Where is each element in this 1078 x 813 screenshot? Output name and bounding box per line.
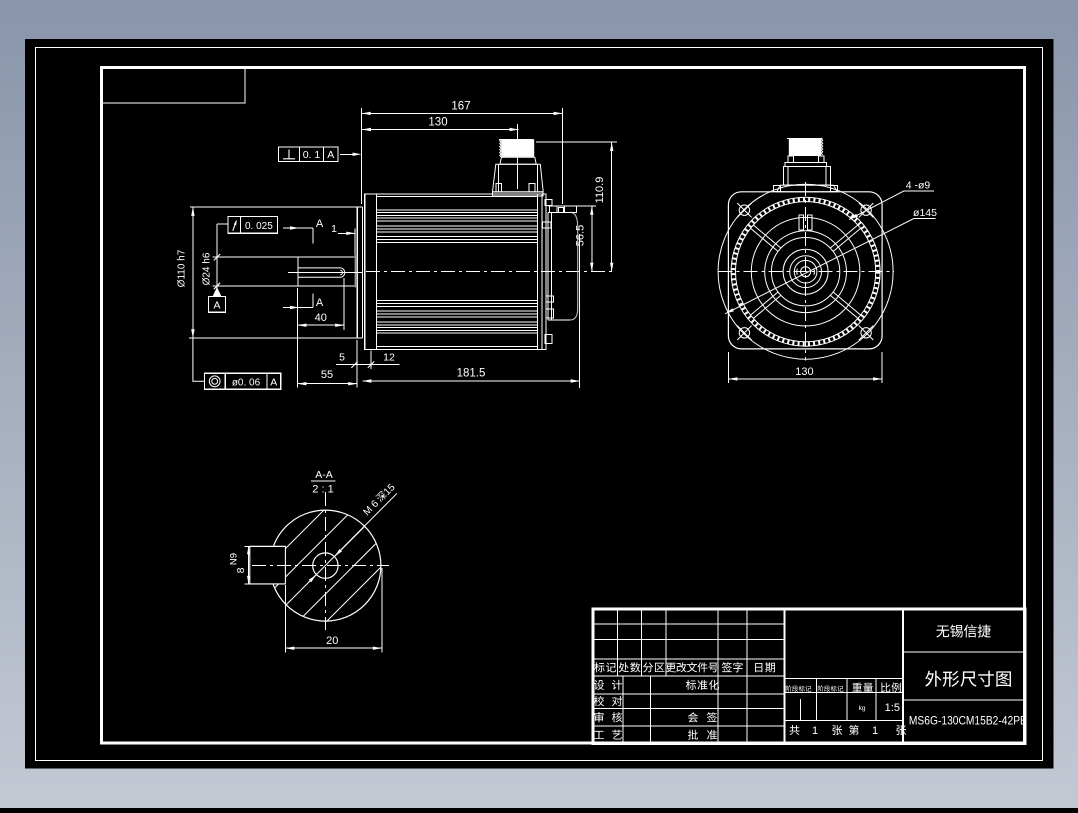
svg-text:N9: N9 (229, 553, 240, 565)
svg-text:kg: kg (859, 705, 866, 712)
svg-text:110.9: 110.9 (594, 177, 606, 204)
svg-text:0. 025: 0. 025 (245, 221, 273, 232)
svg-text:8: 8 (235, 567, 247, 573)
svg-text:A-A: A-A (315, 469, 333, 481)
svg-text:4 -ø9: 4 -ø9 (906, 180, 931, 192)
svg-text:20: 20 (326, 635, 338, 647)
svg-text:A: A (316, 218, 324, 230)
svg-text:MS6G-130CM15B2-42PB: MS6G-130CM15B2-42PB (909, 714, 1027, 728)
svg-text:56.5: 56.5 (575, 225, 587, 246)
svg-text:130: 130 (428, 117, 447, 129)
svg-text:A: A (316, 297, 324, 309)
svg-text:A: A (327, 149, 334, 161)
svg-text:A: A (213, 300, 220, 312)
svg-text:12: 12 (383, 352, 395, 364)
svg-text:1: 1 (331, 223, 337, 235)
svg-text:Ø110 h7: Ø110 h7 (177, 249, 188, 287)
svg-text:1: 1 (872, 725, 878, 737)
svg-text:167: 167 (451, 101, 470, 113)
svg-text:0. 1: 0. 1 (303, 149, 321, 161)
svg-text:1: 1 (812, 725, 818, 737)
svg-text:5: 5 (339, 352, 345, 364)
svg-text:ø145: ø145 (913, 207, 937, 219)
svg-text:181.5: 181.5 (457, 367, 486, 379)
svg-text:A: A (270, 376, 277, 388)
svg-text:55: 55 (321, 369, 333, 381)
svg-text:40: 40 (315, 312, 327, 324)
svg-text:130: 130 (795, 366, 813, 378)
svg-text:Ø24 h6: Ø24 h6 (202, 252, 213, 285)
svg-text:1:5: 1:5 (885, 702, 900, 714)
svg-text:2 : 1: 2 : 1 (312, 484, 333, 496)
svg-text:ø0. 06: ø0. 06 (232, 377, 261, 388)
